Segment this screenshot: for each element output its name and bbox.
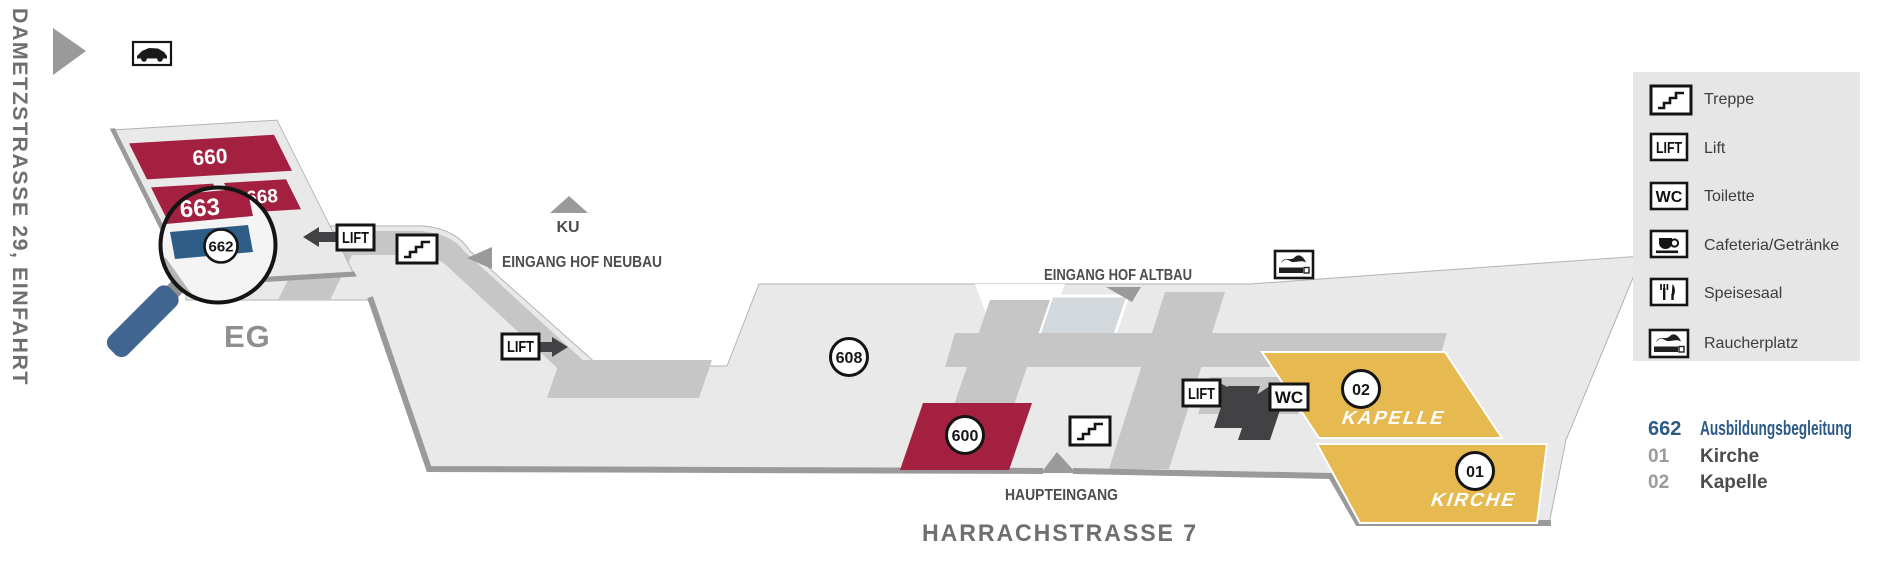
svg-text:LIFT: LIFT bbox=[1656, 140, 1682, 157]
hof-altbau-label: EINGANG HOF ALTBAU bbox=[1044, 267, 1192, 284]
street-harrachstrasse: HARRACHSTRASSE 7 bbox=[922, 520, 1198, 547]
badge-608: 608 bbox=[831, 339, 868, 376]
badge-02: 02 bbox=[1343, 371, 1380, 408]
legend-label-speisesaal: Speisesaal bbox=[1704, 285, 1782, 302]
legend-label-raucherplatz: Raucherplatz bbox=[1704, 335, 1798, 352]
svg-text:600: 600 bbox=[952, 428, 979, 445]
legend-label-toilette: Toilette bbox=[1704, 188, 1755, 205]
index-label-kapelle: Kapelle bbox=[1700, 472, 1768, 493]
floor-label: EG bbox=[224, 319, 271, 354]
svg-text:01: 01 bbox=[1466, 464, 1484, 481]
kirche-label: KIRCHE bbox=[1428, 489, 1520, 510]
index-number-01: 01 bbox=[1648, 446, 1670, 467]
ku-arrow-icon bbox=[550, 196, 588, 213]
cutlery-icon bbox=[1651, 279, 1687, 305]
room-index: 662 Ausbildungsbegleitung 01 Kirche 02 K… bbox=[1648, 418, 1852, 493]
index-number-662: 662 bbox=[1648, 418, 1681, 440]
wc-icon: WC bbox=[1651, 183, 1687, 209]
cafeteria-icon bbox=[1651, 231, 1687, 257]
svg-text:662: 662 bbox=[208, 239, 233, 256]
floorplan-map: DAMETZSTRASSE 29, EINFAHRT 660 668 bbox=[0, 0, 1877, 561]
ku-label: KU bbox=[556, 219, 579, 236]
einfahrt-arrow-icon bbox=[53, 28, 86, 75]
smoking-icon bbox=[1650, 330, 1688, 357]
svg-text:WC: WC bbox=[1275, 388, 1303, 407]
legend-label-cafeteria: Cafeteria/Getränke bbox=[1704, 237, 1839, 254]
stairs-icon bbox=[1070, 417, 1110, 445]
badge-662: 662 bbox=[205, 230, 238, 263]
car-icon bbox=[133, 42, 171, 65]
index-label-ausbildungsbegleitung: Ausbildungsbegleitung bbox=[1700, 418, 1852, 440]
legend-panel: Treppe LIFT Lift WC Toilette Cafeteria/G… bbox=[1633, 72, 1860, 361]
svg-text:WC: WC bbox=[1656, 189, 1683, 206]
magnifier-handle bbox=[103, 282, 182, 361]
stairs-icon bbox=[397, 235, 437, 263]
badge-01: 01 bbox=[1457, 453, 1494, 490]
svg-text:LIFT: LIFT bbox=[507, 339, 534, 356]
wc-badge: WC bbox=[1270, 384, 1308, 410]
kapelle-label: KAPELLE bbox=[1339, 407, 1449, 428]
svg-text:LIFT: LIFT bbox=[1188, 386, 1215, 403]
room-660-label: 660 bbox=[192, 145, 229, 170]
haupteingang-label: HAUPTEINGANG bbox=[1005, 487, 1118, 504]
stairs-icon bbox=[1651, 86, 1691, 114]
lift-3: LIFT bbox=[1183, 380, 1220, 406]
smoking-icon bbox=[1275, 251, 1313, 278]
hof-neubau-label: EINGANG HOF NEUBAU bbox=[502, 254, 662, 271]
floorplan-page: DAMETZSTRASSE 29, EINFAHRT 660 668 bbox=[0, 0, 1877, 561]
legend-label-lift: Lift bbox=[1704, 140, 1726, 157]
index-number-02: 02 bbox=[1648, 472, 1669, 493]
badge-600: 600 bbox=[947, 417, 984, 454]
svg-text:02: 02 bbox=[1352, 382, 1370, 399]
index-label-kirche: Kirche bbox=[1700, 446, 1759, 467]
svg-text:608: 608 bbox=[836, 350, 863, 367]
street-dametzstrasse: DAMETZSTRASSE 29, EINFAHRT bbox=[8, 8, 31, 386]
svg-text:LIFT: LIFT bbox=[342, 230, 369, 247]
legend-label-treppe: Treppe bbox=[1704, 91, 1754, 108]
lift-icon: LIFT bbox=[1651, 134, 1687, 160]
